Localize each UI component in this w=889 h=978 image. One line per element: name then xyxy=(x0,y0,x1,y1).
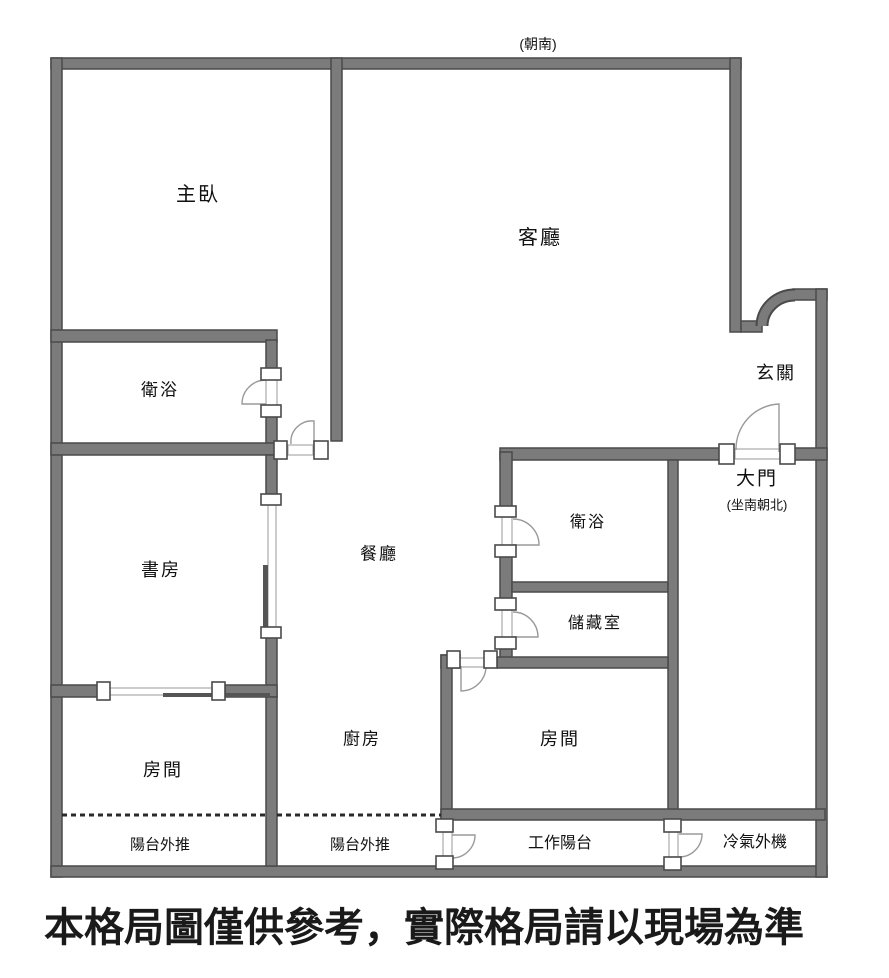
room-label-kitchen: 廚房 xyxy=(343,731,381,748)
room-label-master-bedroom: 主臥 xyxy=(176,185,220,205)
room-label-work-balcony: 工作陽台 xyxy=(528,836,592,852)
door-hall xyxy=(291,421,314,444)
room-label-balcony-middle: 陽台外推 xyxy=(330,838,390,853)
floor-plan-drawing xyxy=(0,0,889,893)
wall-top xyxy=(51,58,741,69)
wall-foyer-curve xyxy=(762,295,795,326)
door-main-entrance xyxy=(736,404,779,452)
room-label-balcony-left: 陽台外推 xyxy=(130,838,190,853)
door-bathroom2 xyxy=(513,519,539,545)
wall-room2-bottom xyxy=(441,809,825,820)
wall-right xyxy=(816,289,827,877)
door-room2 xyxy=(461,666,486,691)
door-storage xyxy=(513,612,538,637)
door-ac-unit xyxy=(679,834,702,857)
wall-maindoor-left xyxy=(500,448,721,460)
room-label-bathroom-2: 衛浴 xyxy=(570,515,606,531)
room-label-ac-outdoor-unit: 冷氣外機 xyxy=(723,835,787,851)
room-label-study: 書房 xyxy=(141,561,181,579)
wall-study-top xyxy=(51,443,275,455)
room-label-bedroom-left: 房間 xyxy=(143,761,183,779)
walls xyxy=(51,58,827,877)
sliding-panel-study xyxy=(263,565,268,627)
main-door-label: 大門 xyxy=(736,470,778,489)
wall-master-living-divider xyxy=(331,58,342,441)
room-label-storage-room: 儲藏室 xyxy=(568,616,622,632)
sliding-door-tracks xyxy=(110,505,276,695)
room-label-dining-room: 餐廳 xyxy=(360,546,398,563)
room-label-living-room: 客廳 xyxy=(518,228,562,248)
main-door-orientation-label: (坐南朝北) xyxy=(727,499,788,512)
room-label-bedroom-right: 房間 xyxy=(540,730,580,748)
wall-master-bottom xyxy=(51,330,277,342)
floor-plan: (朝南) 主臥 客廳 衛浴 書房 餐廳 玄關 衛浴 儲藏室 廚房 房間 房間 陽… xyxy=(0,0,889,893)
room-label-bathroom-1: 衛浴 xyxy=(141,382,179,399)
door-bathroom1 xyxy=(242,380,266,404)
orientation-label: (朝南) xyxy=(519,37,556,51)
room-label-entrance-hall: 玄關 xyxy=(756,364,796,382)
door-work-balcony xyxy=(452,835,475,858)
wall-bath2-bottom xyxy=(512,582,668,592)
sliding-door-panels xyxy=(163,565,270,697)
wall-foyer-left xyxy=(730,58,741,332)
wall-left xyxy=(51,58,62,877)
disclaimer-text: 本格局圖僅供參考，實際格局請以現場為準 xyxy=(44,895,804,953)
wall-maindoor-right xyxy=(794,448,827,460)
